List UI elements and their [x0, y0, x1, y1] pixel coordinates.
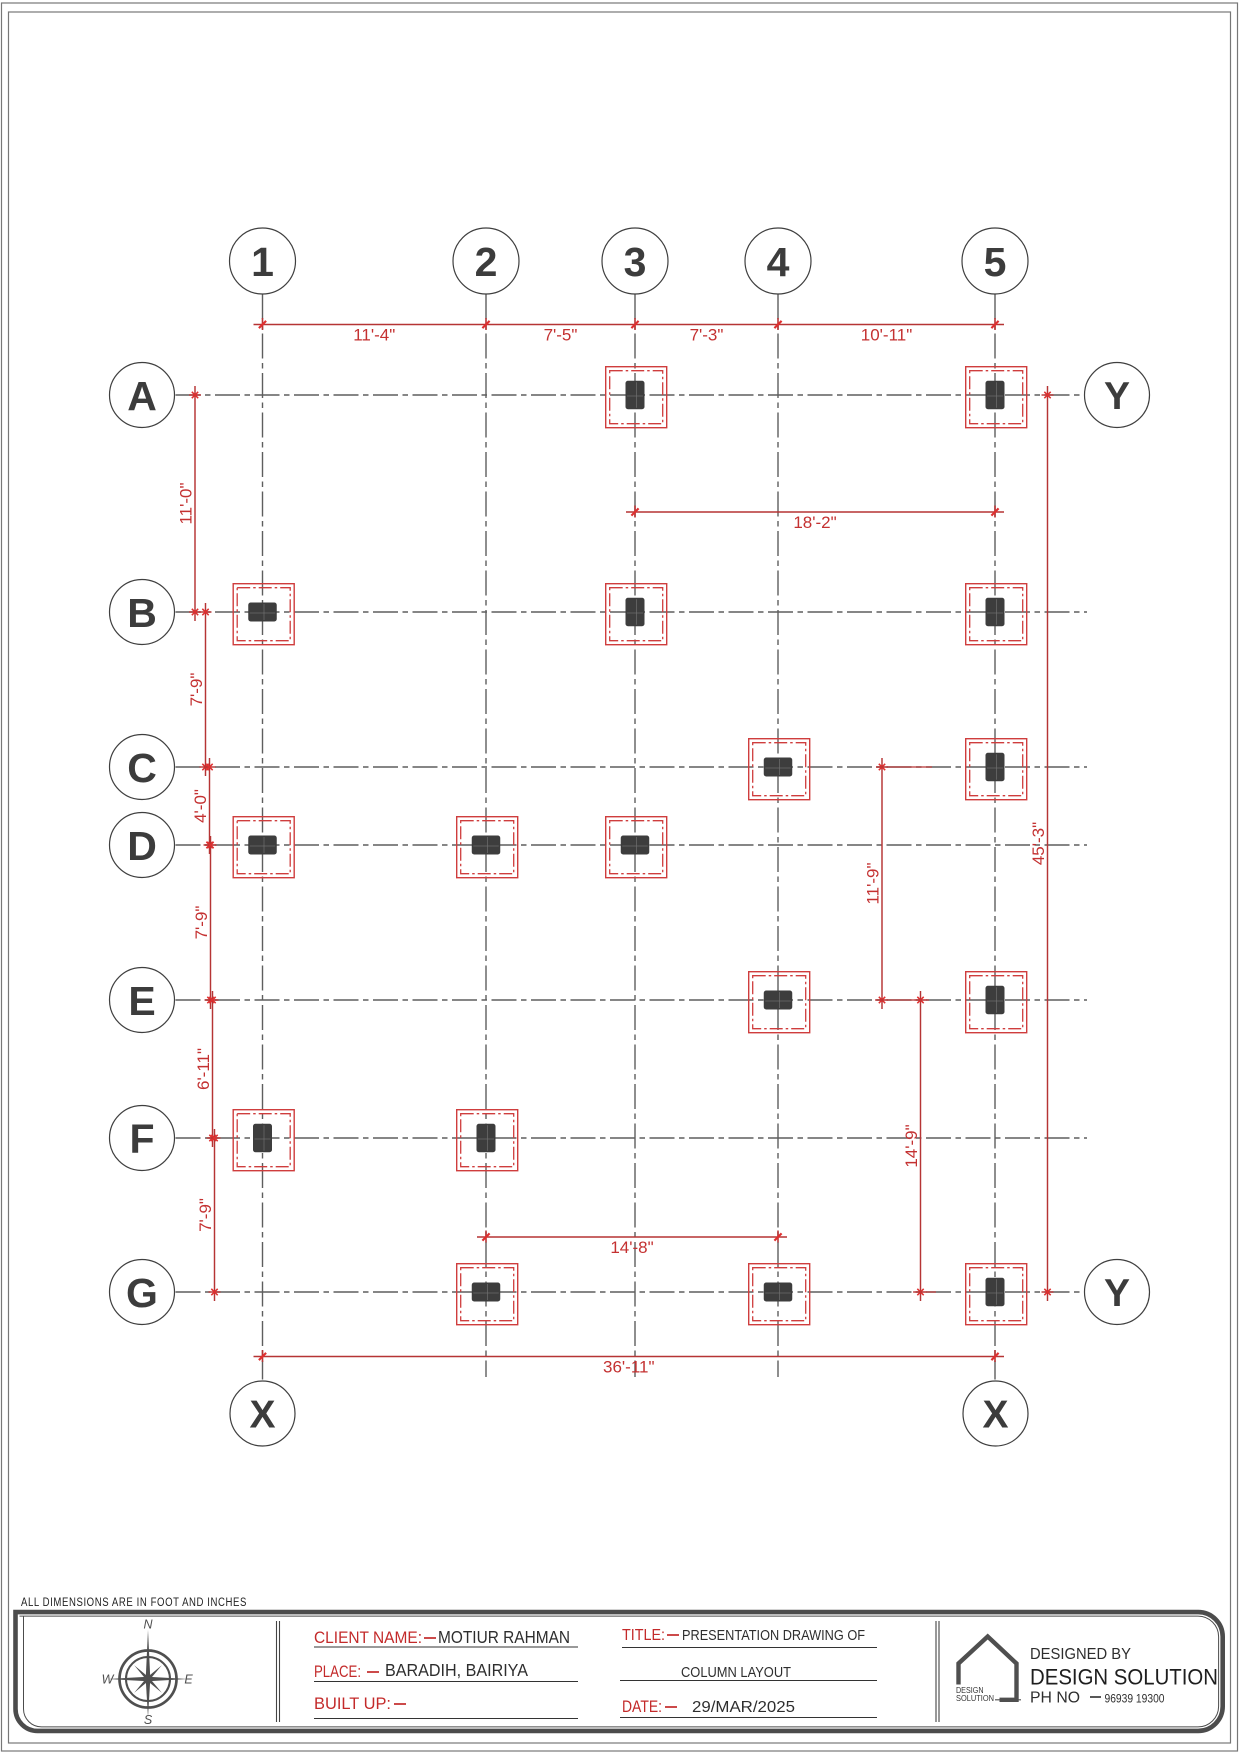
svg-text:F: F — [129, 1116, 154, 1162]
svg-text:DESIGN SOLUTION: DESIGN SOLUTION — [1030, 1665, 1218, 1690]
svg-text:6'-11": 6'-11" — [194, 1048, 213, 1090]
svg-text:B: B — [127, 590, 157, 636]
svg-text:A: A — [127, 373, 157, 419]
svg-text:X: X — [249, 1394, 275, 1437]
svg-text:18'-2": 18'-2" — [793, 513, 836, 532]
svg-text:7'-9": 7'-9" — [192, 906, 211, 940]
svg-text:11'-9": 11'-9" — [864, 862, 883, 904]
svg-text:DESIGNED BY: DESIGNED BY — [1030, 1646, 1131, 1663]
svg-text:3: 3 — [624, 239, 647, 285]
svg-text:BARADIH, BAIRIYA: BARADIH, BAIRIYA — [385, 1660, 528, 1680]
svg-text:11'-0": 11'-0" — [177, 482, 196, 524]
svg-text:DATE:: DATE: — [622, 1698, 662, 1716]
svg-text:10'-11": 10'-11" — [861, 325, 913, 344]
svg-text:1: 1 — [251, 239, 274, 285]
svg-text:5: 5 — [984, 239, 1007, 285]
svg-text:14'-8": 14'-8" — [610, 1238, 653, 1257]
svg-text:D: D — [127, 823, 157, 869]
svg-text:W: W — [102, 1673, 115, 1687]
svg-text:7'-5": 7'-5" — [544, 325, 578, 344]
svg-text:TITLE:: TITLE: — [622, 1627, 665, 1644]
svg-text:4: 4 — [767, 239, 790, 285]
svg-text:Y: Y — [1104, 1272, 1130, 1315]
svg-text:MOTIUR RAHMAN: MOTIUR RAHMAN — [438, 1627, 570, 1647]
svg-text:29/MAR/2025: 29/MAR/2025 — [692, 1699, 795, 1716]
svg-text:BUILT UP:: BUILT UP: — [314, 1694, 391, 1713]
svg-text:11'-4": 11'-4" — [353, 325, 395, 344]
svg-text:X: X — [982, 1394, 1008, 1437]
svg-text:96939 19300: 96939 19300 — [1105, 1693, 1165, 1705]
svg-text:E: E — [184, 1673, 193, 1687]
svg-text:COLUMN LAYOUT: COLUMN LAYOUT — [681, 1665, 791, 1681]
svg-text:7'-9": 7'-9" — [196, 1198, 215, 1232]
svg-text:N: N — [143, 1618, 153, 1632]
svg-text:7'-9": 7'-9" — [187, 673, 206, 707]
svg-text:ALL DIMENSIONS ARE IN FOOT: ALL DIMENSIONS ARE IN FOOT AND INCHES — [21, 1597, 247, 1609]
svg-text:G: G — [126, 1270, 158, 1316]
svg-text:7'-3": 7'-3" — [690, 325, 724, 344]
svg-text:PLACE:: PLACE: — [314, 1662, 361, 1681]
svg-text:E: E — [128, 978, 155, 1024]
svg-text:4'-0": 4'-0" — [191, 789, 210, 823]
svg-text:2: 2 — [475, 239, 498, 285]
svg-text:S: S — [144, 1713, 153, 1727]
svg-text:SOLUTION: SOLUTION — [956, 1693, 994, 1703]
svg-text:36'-11": 36'-11" — [603, 1357, 655, 1376]
svg-text:PRESENTATION DRAWING OF: PRESENTATION DRAWING OF — [682, 1628, 865, 1644]
svg-text:C: C — [127, 745, 157, 791]
svg-text:Y: Y — [1104, 375, 1130, 418]
svg-text:14'-9": 14'-9" — [902, 1124, 921, 1167]
svg-text:45'-3": 45'-3" — [1029, 822, 1048, 865]
svg-text:PH NO: PH NO — [1030, 1689, 1080, 1706]
svg-text:CLIENT NAME:: CLIENT NAME: — [314, 1628, 422, 1647]
